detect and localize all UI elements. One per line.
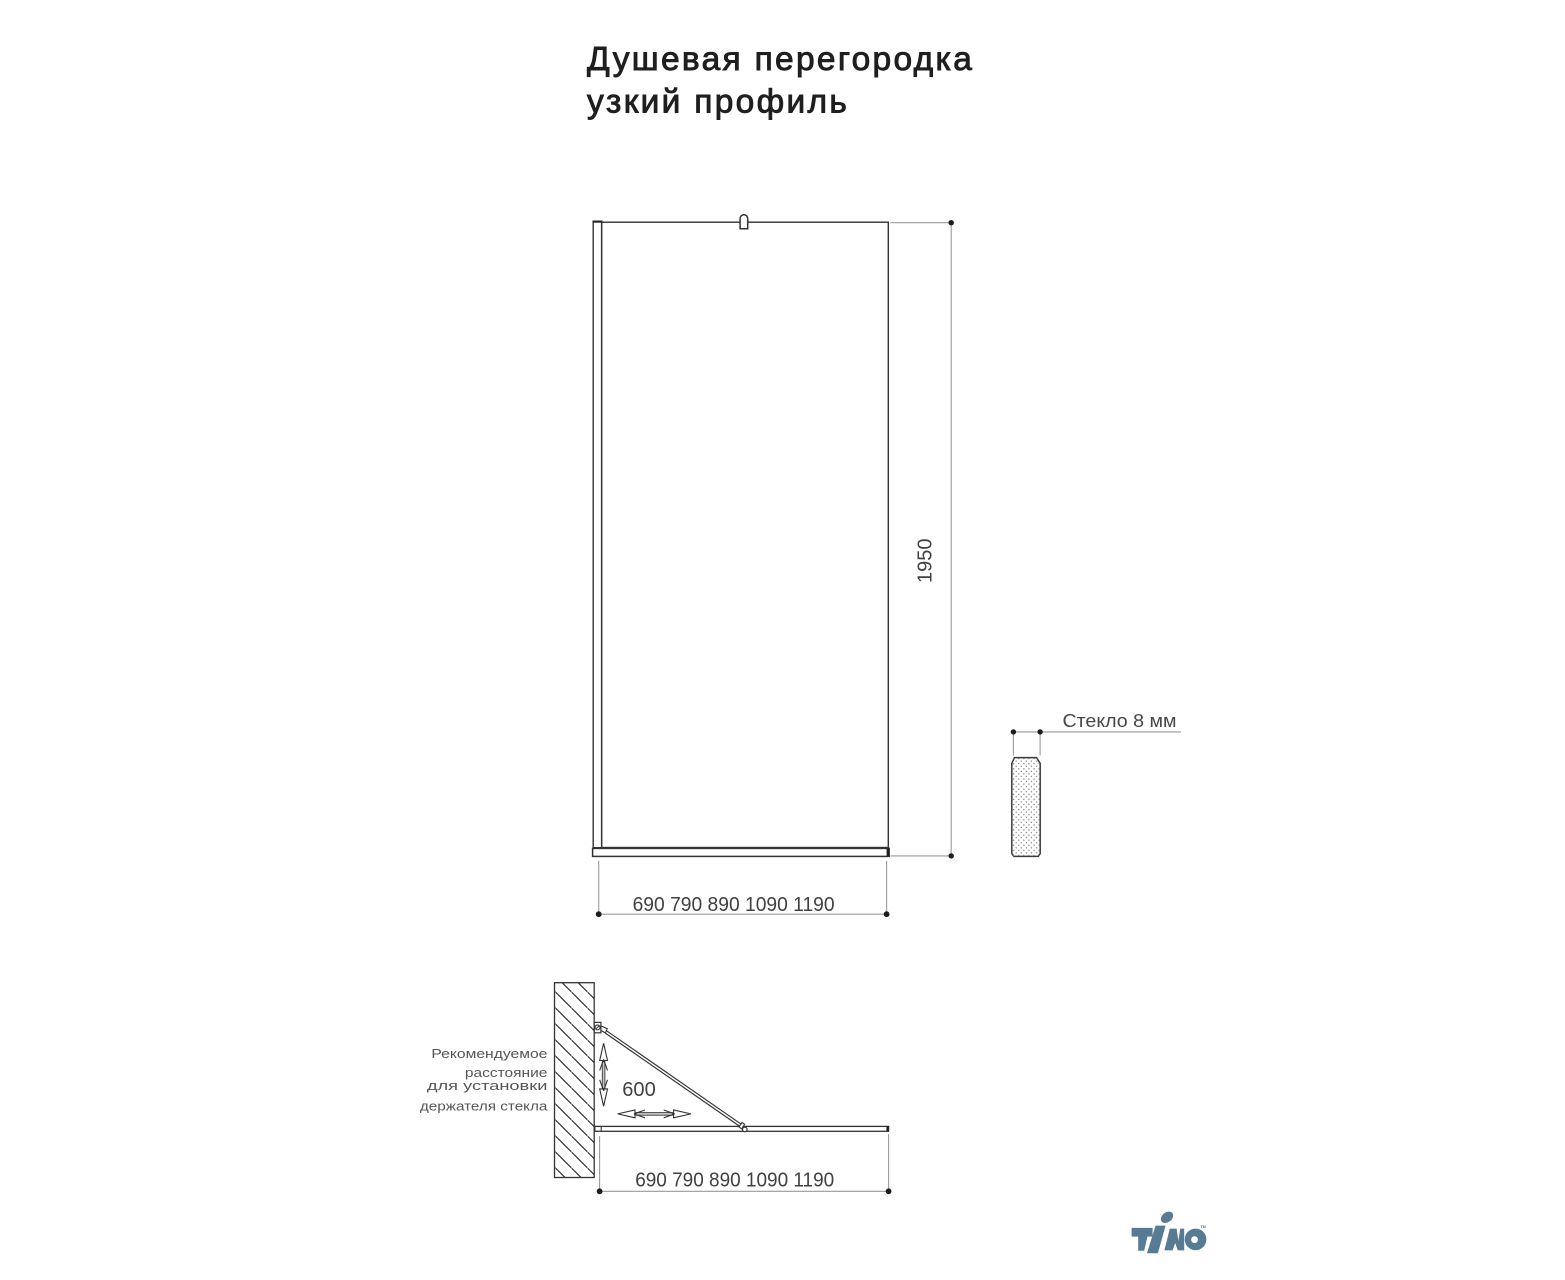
svg-text:1950: 1950	[915, 539, 937, 584]
svg-text:600: 600	[622, 1079, 656, 1101]
svg-text:для установки: для установки	[427, 1078, 548, 1093]
svg-text:Стекло 8 мм: Стекло 8 мм	[1063, 710, 1177, 731]
svg-text:Душевая перегородка: Душевая перегородка	[587, 41, 974, 78]
svg-text:узкий профиль: узкий профиль	[587, 83, 849, 120]
svg-text:Рекомендуемое: Рекомендуемое	[431, 1046, 547, 1061]
svg-text:690 790 890 1090 1190: 690 790 890 1090 1190	[635, 1170, 834, 1192]
svg-text:держателя стекла: держателя стекла	[420, 1099, 548, 1114]
svg-text:690 790 890 1090 1190: 690 790 890 1090 1190	[633, 894, 835, 916]
svg-text:TM: TM	[1201, 1225, 1206, 1229]
